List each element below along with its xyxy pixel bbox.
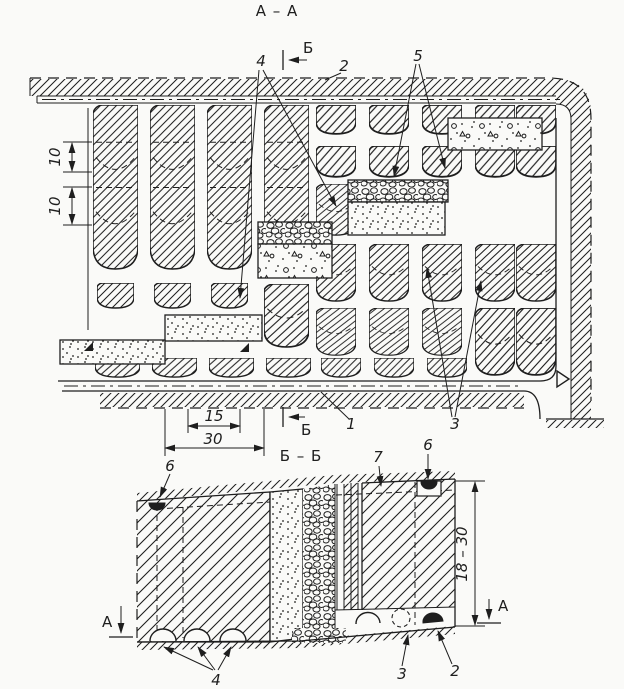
callout-2-leader — [438, 631, 452, 664]
plan-floor-band — [100, 393, 524, 407]
raise-opening-filled — [423, 613, 443, 623]
figure-canvas: А – А — [0, 0, 624, 689]
callout-4-label: 4 — [211, 671, 221, 689]
callout-2-label: 2 — [339, 57, 349, 75]
chamber — [369, 146, 409, 177]
chamber — [475, 308, 515, 375]
plan-view: А – А — [30, 2, 604, 456]
callout-2-leader — [325, 73, 341, 80]
dim-sublevels: 10 10 — [46, 142, 92, 225]
rock-fill-rect — [448, 118, 542, 150]
chamber — [93, 105, 138, 269]
chamber — [369, 308, 409, 355]
dim-10-lower-label: 10 — [46, 196, 64, 215]
callout-6-left-label: 6 — [165, 457, 175, 475]
callout-4-leader — [164, 647, 213, 670]
cut-marker-a-right: А — [477, 597, 509, 623]
dim-30-label: 30 — [203, 430, 222, 448]
chamber — [264, 284, 309, 347]
drift-opening — [356, 612, 380, 624]
dim-15-label: 15 — [204, 407, 223, 425]
ore-block-right — [362, 479, 455, 610]
drift-outline-dashed — [392, 609, 410, 627]
cut-letter: А — [102, 613, 113, 631]
chamber — [207, 105, 252, 269]
chamber-stub — [427, 358, 467, 377]
sand-fill-rect — [348, 202, 445, 235]
chamber — [369, 244, 409, 301]
chamber — [316, 308, 356, 355]
plan-ground-hatch — [546, 420, 604, 428]
callout-4-leader — [218, 647, 231, 670]
callout-5-label: 5 — [413, 47, 423, 65]
chamber — [475, 244, 515, 301]
chamber — [150, 105, 195, 269]
callout-3-label: 3 — [450, 415, 460, 433]
callout-7-label: 7 — [373, 448, 383, 466]
chamber — [516, 308, 556, 375]
cut-marker-b-bottom: Б — [283, 407, 311, 439]
plan-right-band — [556, 79, 591, 419]
chamber-stub — [209, 358, 254, 377]
chamber — [422, 308, 462, 355]
chamber — [316, 105, 356, 134]
chamber — [516, 244, 556, 301]
cut-letter: Б — [303, 39, 313, 57]
dim-stope-height: 18 – 30 — [453, 481, 485, 626]
sand-fill-rect — [60, 340, 165, 364]
chamber-stub — [321, 358, 361, 377]
plan-top-band — [30, 79, 556, 96]
section-title: Б – Б — [280, 447, 323, 465]
chamber-stub — [266, 358, 311, 377]
cut-letter: А — [498, 597, 509, 615]
callout-6-right-label: 6 — [423, 436, 433, 454]
chamber-stub — [374, 358, 414, 377]
plan-title: А – А — [256, 2, 299, 20]
rubble-fill-rect — [258, 222, 332, 244]
cut-letter: Б — [301, 421, 311, 439]
rubble-fill-rect — [348, 180, 448, 202]
mining-method-figure: А – А — [0, 0, 624, 689]
ore-pass-triangle — [557, 371, 569, 387]
rock-fill-rect — [258, 244, 332, 278]
callout-4-label: 4 — [256, 52, 266, 70]
chamber — [154, 283, 191, 308]
chamber — [97, 283, 134, 308]
section-view: Б – Б 18 — [102, 436, 509, 689]
face-wedge-mark — [240, 343, 249, 352]
dim-10-upper-label: 10 — [46, 147, 64, 166]
chamber — [211, 283, 248, 308]
callout-3-label: 3 — [397, 665, 407, 683]
chamber — [316, 146, 356, 177]
cut-marker-a-left: А — [102, 606, 133, 637]
sand-fill-rect — [165, 315, 262, 341]
cut-marker-b-top: Б — [283, 39, 313, 70]
rubble-fill-band — [303, 484, 335, 638]
dim-18-30-label: 18 – 30 — [453, 526, 471, 581]
dim-chambers: 15 30 — [165, 407, 264, 456]
callout-2-label: 2 — [450, 662, 460, 680]
callout-3-leader — [402, 635, 408, 666]
sand-fill-band — [270, 489, 303, 642]
